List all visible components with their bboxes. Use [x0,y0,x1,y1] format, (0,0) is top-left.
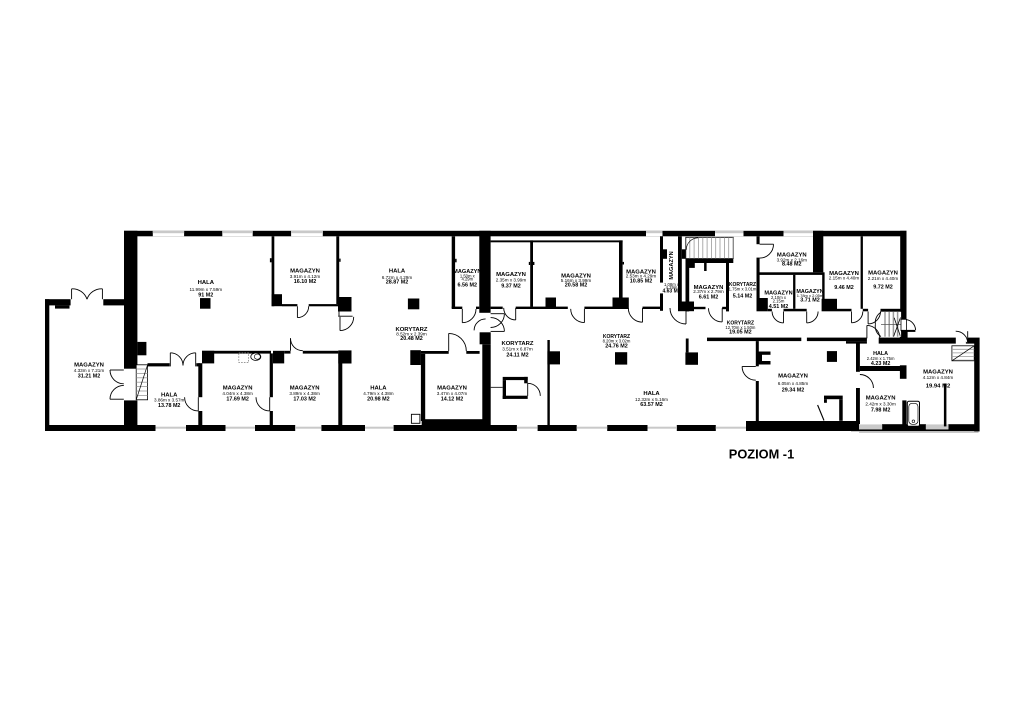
svg-text:24.11 M2: 24.11 M2 [506,353,528,359]
svg-text:6.61 M2: 6.61 M2 [699,294,718,300]
svg-text:2.42m x 3.30m: 2.42m x 3.30m [865,402,896,407]
svg-text:7.98 M2: 7.98 M2 [871,407,890,413]
svg-text:24.76 M2: 24.76 M2 [605,344,627,350]
svg-text:6.56 M2: 6.56 M2 [458,282,477,288]
svg-text:3.89m x 4.38m: 3.89m x 4.38m [289,391,320,396]
svg-text:9.72 M2: 9.72 M2 [873,284,892,290]
svg-text:13.78 M2: 13.78 M2 [158,403,180,409]
svg-text:4.33m x 7.21m: 4.33m x 7.21m [74,368,105,373]
svg-text:3.51m x 6.87m: 3.51m x 6.87m [502,347,533,352]
svg-text:HALA: HALA [198,280,215,286]
svg-text:11.99m x 7.59m: 11.99m x 7.59m [189,287,222,292]
svg-text:MAGAZYN: MAGAZYN [778,374,808,380]
svg-text:6.05m x 4.85m: 6.05m x 4.85m [778,381,809,386]
svg-text:3.47m x 4.07m: 3.47m x 4.07m [437,391,468,396]
svg-text:4.04m x 4.38m: 4.04m x 4.38m [222,391,253,396]
svg-text:MAGAZYN: MAGAZYN [669,251,675,279]
svg-text:1.75m x 3.01m: 1.75m x 3.01m [729,286,757,291]
svg-text:20.48 M2: 20.48 M2 [400,336,422,342]
svg-text:14.12 M2: 14.12 M2 [441,397,463,403]
svg-text:5.14 M2: 5.14 M2 [733,293,752,299]
svg-text:16.10 M2: 16.10 M2 [294,279,316,285]
svg-text:4.79m x 4.38m: 4.79m x 4.38m [363,391,394,396]
svg-text:31.21 M2: 31.21 M2 [78,373,100,379]
svg-text:HALA: HALA [643,391,660,397]
svg-text:MAGAZYN: MAGAZYN [866,395,896,401]
svg-text:20.98 M2: 20.98 M2 [367,397,389,403]
svg-text:3.86m x 3.57m: 3.86m x 3.57m [154,398,185,403]
svg-text:28.87 M2: 28.87 M2 [386,280,408,286]
svg-text:19.94 M2: 19.94 M2 [926,383,951,389]
svg-text:91 M2: 91 M2 [198,293,213,299]
svg-text:29.34 M2: 29.34 M2 [782,388,804,394]
svg-text:3.71 M2: 3.71 M2 [800,298,819,304]
svg-text:2.15m x 4.40m: 2.15m x 4.40m [829,276,860,281]
svg-text:POZIOM -1: POZIOM -1 [729,446,794,461]
svg-text:9.46 M2: 9.46 M2 [834,285,853,291]
svg-text:63.57 M2: 63.57 M2 [640,402,662,408]
svg-text:4.12m x 4.84m: 4.12m x 4.84m [923,375,954,380]
svg-text:10.85 M2: 10.85 M2 [630,279,652,285]
svg-text:17.03 M2: 17.03 M2 [293,397,315,403]
svg-text:2.35m x 3.99m: 2.35m x 3.99m [496,278,527,283]
svg-text:2.21m x 4.40m: 2.21m x 4.40m [868,276,899,281]
svg-text:2.37m x 2.79m: 2.37m x 2.79m [693,289,724,294]
svg-text:8.48 M2: 8.48 M2 [782,262,801,268]
svg-text:HALA: HALA [389,269,406,275]
svg-text:9.37 M2: 9.37 M2 [501,284,520,290]
svg-text:4.29m: 4.29m [461,276,473,281]
svg-text:2.15m: 2.15m [773,299,785,304]
svg-text:19.05 M2: 19.05 M2 [729,329,751,335]
svg-text:17.69 M2: 17.69 M2 [226,397,248,403]
svg-text:20.58 M2: 20.58 M2 [565,282,587,288]
